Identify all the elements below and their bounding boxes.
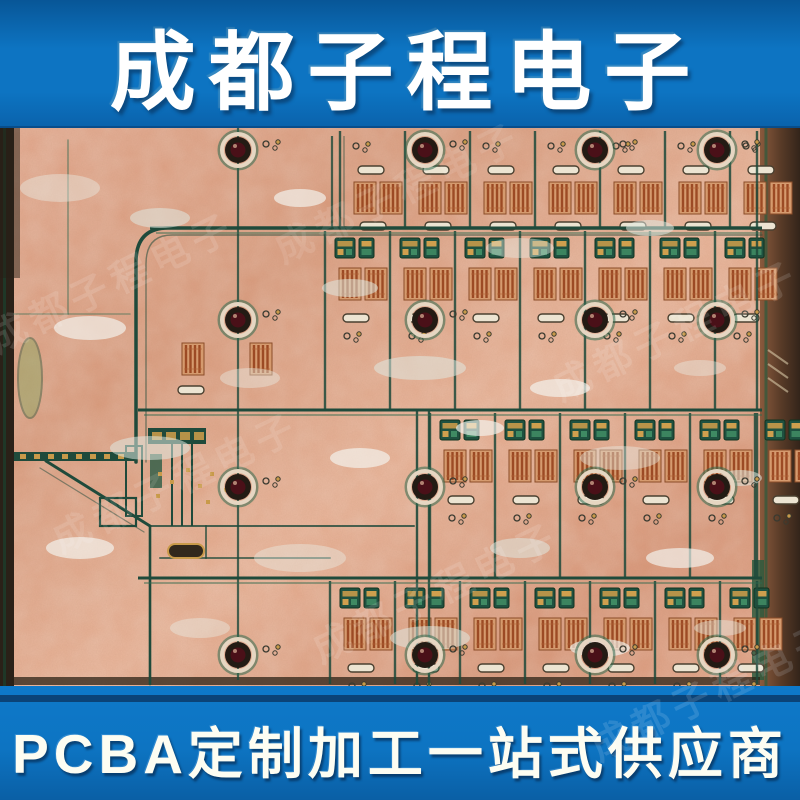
solder-patch	[274, 189, 326, 207]
pcb-photo	[0, 128, 800, 686]
solder-patch	[530, 379, 590, 397]
left-edge-shadow	[0, 128, 20, 278]
top-banner: 成都子程电子	[0, 0, 800, 128]
tagline: PCBA定制加工一站式供应商	[12, 709, 788, 789]
panel-bottom-edge	[12, 677, 760, 685]
solder-patch	[456, 420, 504, 436]
solder-patch	[46, 537, 114, 559]
solder-patch	[486, 238, 554, 258]
solder-patch	[330, 448, 390, 468]
pcb-slot	[178, 386, 204, 394]
product-image: 成都子程电子	[0, 0, 800, 800]
solder-patch	[646, 548, 714, 568]
pcb-pad-grid	[182, 343, 204, 375]
pcb-panel-image	[0, 128, 800, 686]
left-edge-capsule	[18, 338, 42, 418]
solder-patch	[54, 316, 126, 340]
company-name: 成都子程电子	[110, 2, 703, 127]
solder-patch	[130, 208, 190, 228]
solder-patch	[694, 620, 746, 636]
solder-patch	[110, 436, 190, 460]
solder-patch	[220, 368, 280, 388]
solder-patch	[580, 446, 660, 470]
solder-patch	[254, 544, 346, 572]
solder-patch	[674, 360, 726, 376]
bottom-banner: PCBA定制加工一站式供应商	[0, 686, 800, 800]
solder-patch	[490, 538, 550, 558]
solder-patch	[626, 220, 674, 236]
solder-patch	[322, 279, 378, 297]
solder-patch	[20, 174, 100, 202]
solder-patch	[374, 356, 466, 380]
banner-divider-line	[0, 695, 800, 702]
solder-patch	[170, 618, 230, 638]
